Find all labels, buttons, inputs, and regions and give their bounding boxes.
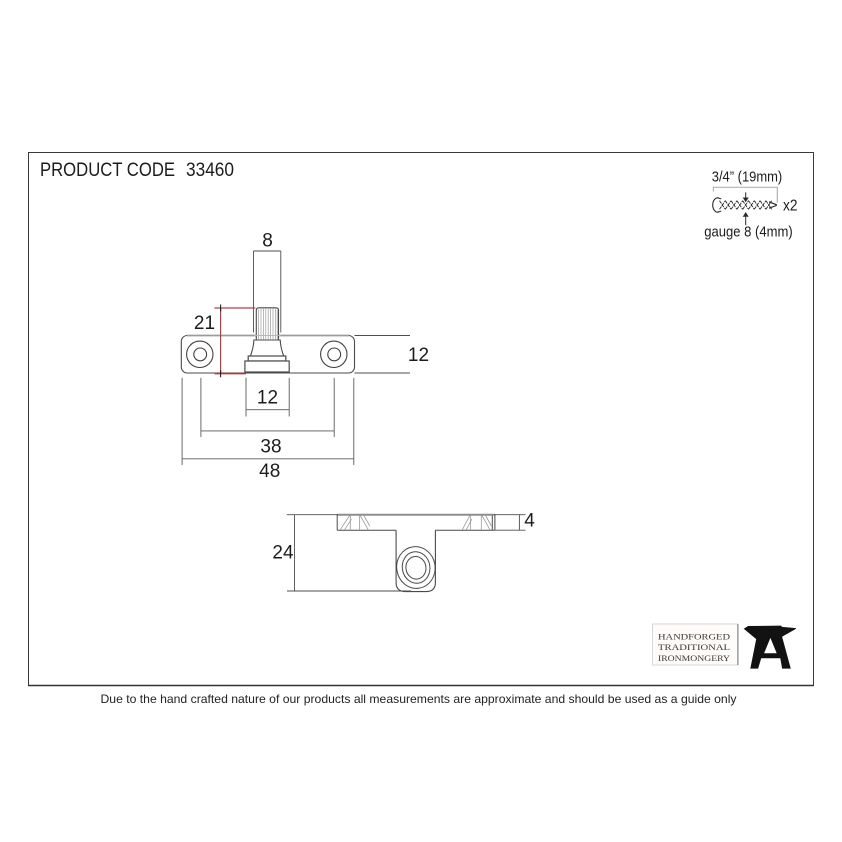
svg-text:48: 48 [259,461,280,482]
svg-text:TRADITIONAL: TRADITIONAL [658,643,730,652]
svg-text:4: 4 [524,511,535,532]
svg-text:38: 38 [260,437,281,458]
svg-text:33460: 33460 [186,159,234,181]
svg-text:8: 8 [262,231,273,252]
svg-text:x2: x2 [783,198,798,215]
svg-text:3/4” (19mm): 3/4” (19mm) [712,169,783,186]
svg-text:Due to the hand crafted nature: Due to the hand crafted nature of our pr… [101,692,737,706]
svg-text:PRODUCT CODE: PRODUCT CODE [40,159,175,181]
svg-text:12: 12 [257,388,278,409]
svg-text:12: 12 [408,345,429,366]
svg-text:IRONMONGERY: IRONMONGERY [658,654,730,663]
svg-text:gauge 8 (4mm): gauge 8 (4mm) [704,224,793,241]
svg-text:24: 24 [272,543,294,564]
svg-text:HANDFORGED: HANDFORGED [658,632,730,641]
svg-text:21: 21 [194,313,215,334]
